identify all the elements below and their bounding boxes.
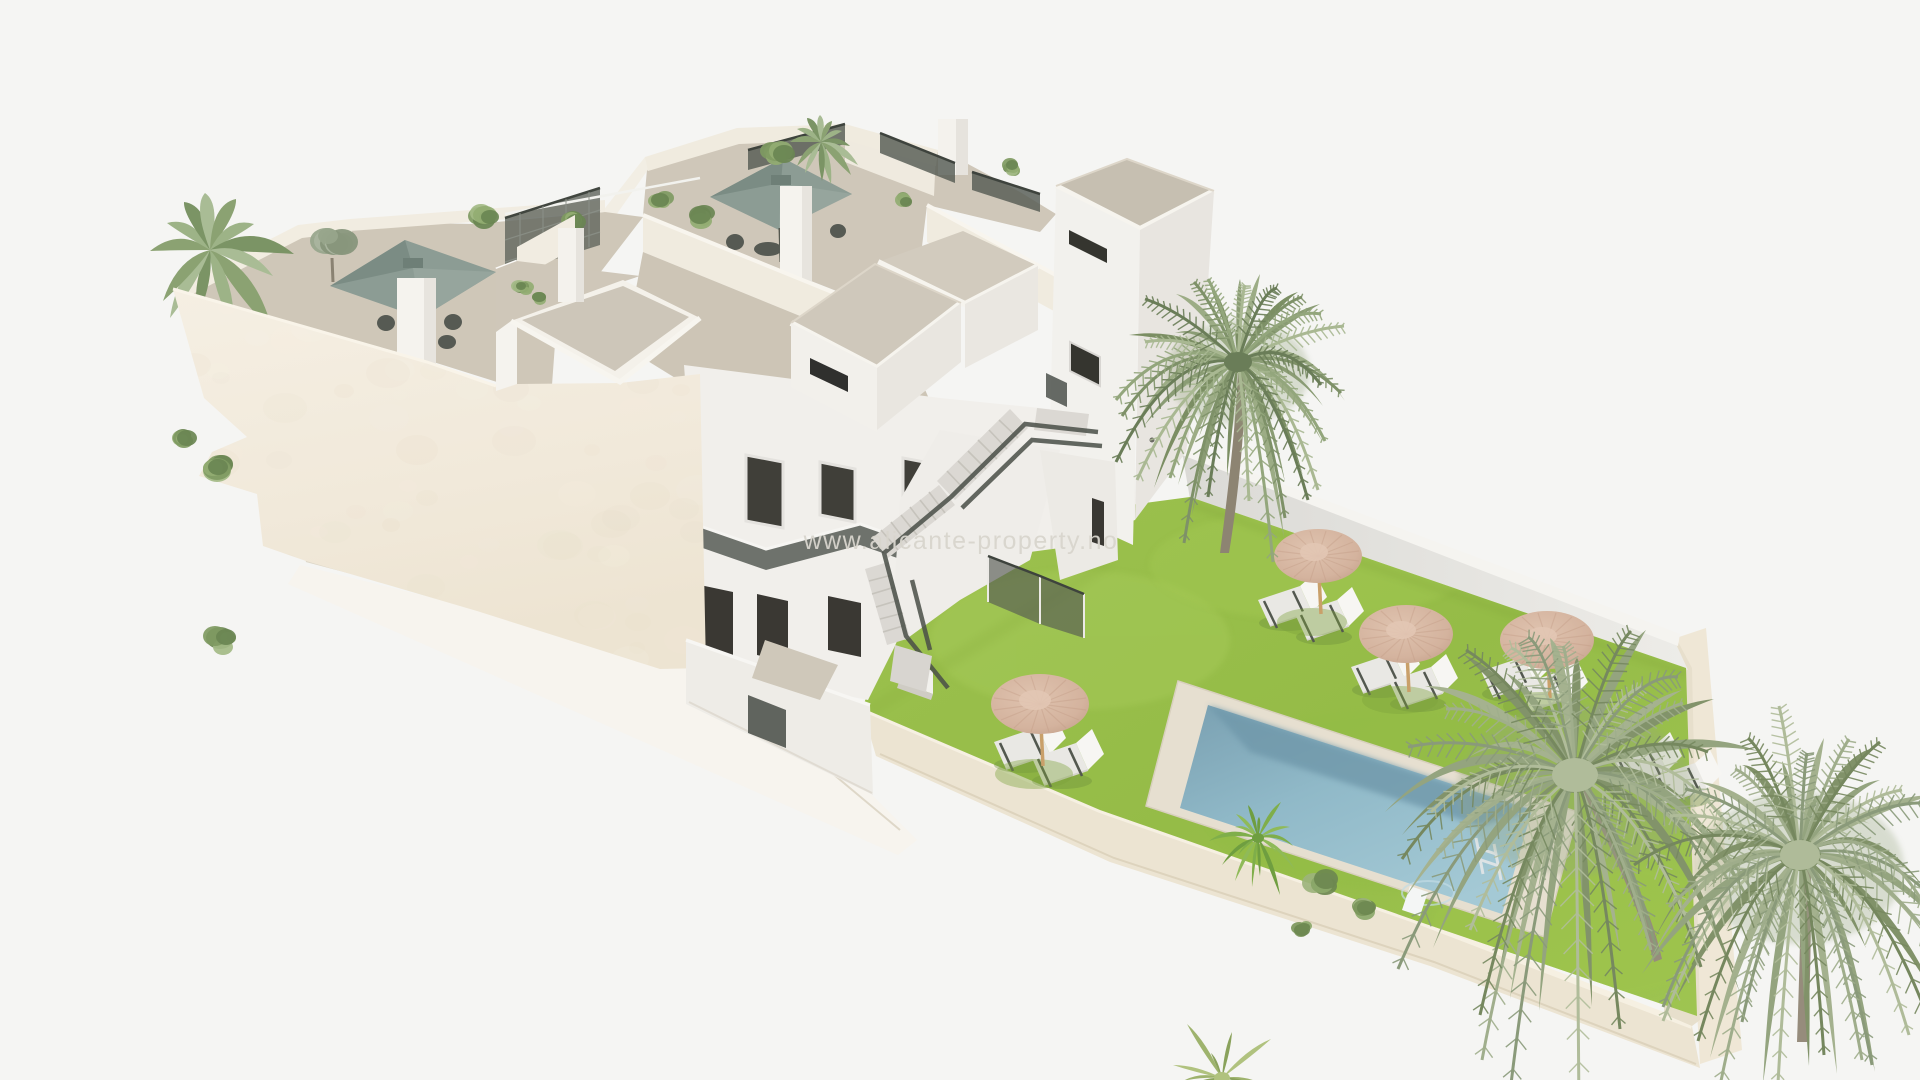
svg-text:www.alicante-property.no: www.alicante-property.no (803, 527, 1119, 555)
